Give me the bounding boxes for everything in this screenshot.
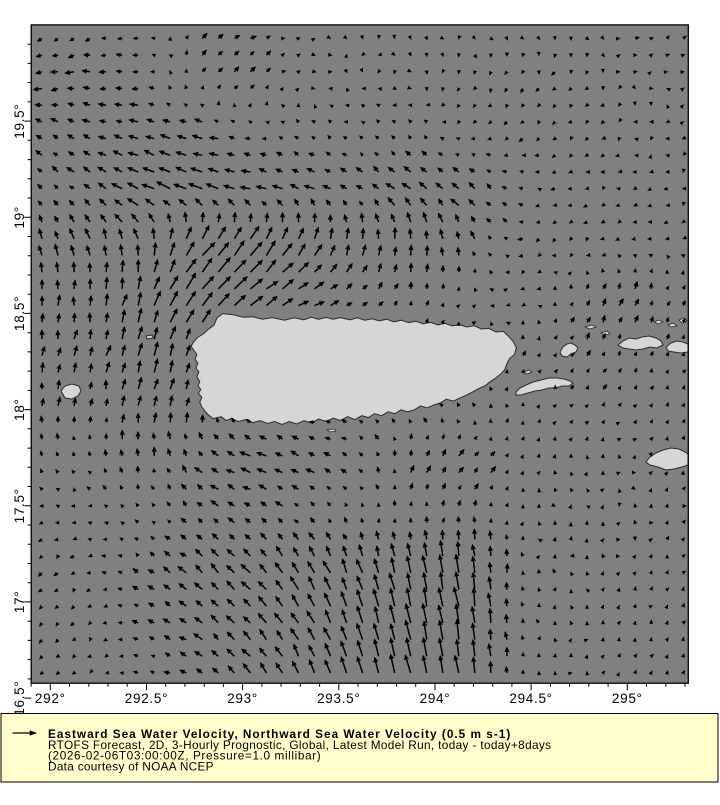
svg-text:293.5°: 293.5° <box>317 691 360 706</box>
svg-text:294°: 294° <box>420 691 451 706</box>
svg-text:Data courtesy of NOAA NCEP: Data courtesy of NOAA NCEP <box>48 759 214 773</box>
svg-text:19.5°: 19.5° <box>12 104 27 139</box>
svg-text:17°: 17° <box>12 591 27 614</box>
svg-text:19°: 19° <box>12 206 27 229</box>
svg-text:294.5°: 294.5° <box>509 691 552 706</box>
svg-text:17.5°: 17.5° <box>12 488 27 523</box>
svg-text:18.5°: 18.5° <box>12 296 27 331</box>
svg-text:18°: 18° <box>12 398 27 421</box>
svg-text:293°: 293° <box>227 691 258 706</box>
svg-text:16.5°: 16.5° <box>12 681 27 716</box>
svg-text:292.5°: 292.5° <box>125 691 168 706</box>
svg-text:292°: 292° <box>35 691 66 706</box>
svg-text:295°: 295° <box>612 691 643 706</box>
